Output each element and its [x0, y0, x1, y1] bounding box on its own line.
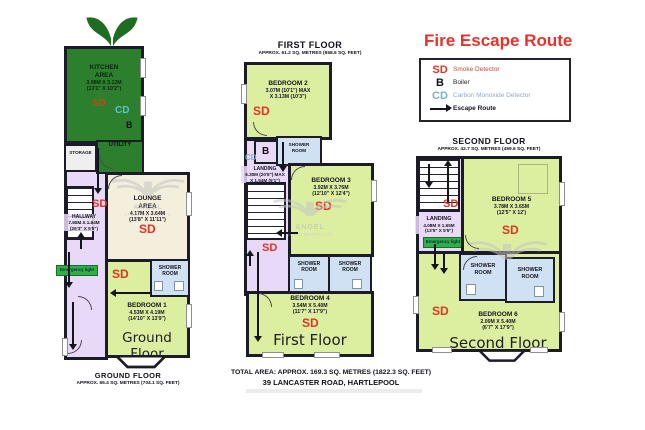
escape-arrow-icon	[278, 232, 298, 234]
front-door-gap	[62, 338, 68, 356]
legend-item-boiler: B Boiler	[427, 76, 563, 89]
room-name: BEDROOM 5	[463, 196, 560, 204]
window	[140, 58, 146, 78]
footer-total-area: TOTAL AREA: APPROX. 169.3 SQ. METRES (18…	[198, 369, 464, 376]
window	[241, 84, 247, 104]
footer-underline	[246, 389, 422, 393]
escape-arrow-icon	[72, 302, 74, 348]
escape-arrow-icon	[112, 292, 150, 294]
window	[186, 304, 192, 328]
window	[559, 312, 565, 332]
shower-fixture	[466, 284, 476, 295]
escape-arrow-icon	[443, 252, 445, 272]
window	[559, 182, 565, 206]
legend-item-label: Carbon Monoxide Detector	[453, 92, 531, 99]
smoke-detector-marker: SD	[443, 199, 458, 210]
room-name: LANDING	[415, 216, 463, 223]
escape-arrow-icon	[447, 162, 449, 202]
floor-heading-title: SECOND FLOOR	[410, 136, 568, 146]
escape-arrow-icon	[97, 148, 99, 192]
boiler-symbol: B	[427, 77, 453, 89]
window	[371, 180, 377, 202]
window	[314, 352, 340, 358]
window	[140, 96, 146, 116]
window	[530, 347, 548, 353]
legend-item-label: Smoke Detector	[453, 66, 500, 73]
cd-symbol: CD	[427, 90, 453, 102]
room-name: BEDROOM 6	[438, 311, 558, 319]
shower-fixture	[534, 286, 544, 297]
floor-heading-area: APPROX. 42.7 SQ. METRES (459.6 SQ. FEET)	[410, 147, 568, 152]
floor-heading: SECOND FLOOR APPROX. 42.7 SQ. METRES (45…	[410, 136, 568, 152]
legend-item-label: Escape Route	[453, 105, 496, 112]
window	[432, 347, 452, 353]
bay-window	[477, 349, 527, 364]
escape-arrow-icon	[434, 244, 436, 268]
room-name: SHOWER ROOM	[505, 267, 555, 280]
legend-box: SD Smoke Detector B Boiler CD Carbon Mon…	[419, 58, 571, 122]
escape-arrow-icon	[282, 142, 284, 170]
footer: TOTAL AREA: APPROX. 169.3 SQ. METRES (18…	[198, 369, 464, 387]
smoke-detector-marker: SD	[502, 224, 519, 236]
legend-title: Fire Escape Route	[424, 31, 572, 51]
legend-item-escape-route: Escape Route	[427, 102, 563, 115]
emergency-light-badge: Emergency light	[423, 237, 463, 248]
legend-item-label: Boiler	[453, 79, 470, 86]
sd-symbol: SD	[427, 64, 453, 76]
window	[186, 192, 192, 216]
legend-item-smoke-detector: SD Smoke Detector	[427, 63, 563, 76]
window	[262, 352, 284, 358]
escape-arrow-icon	[249, 252, 251, 266]
escape-arrow-icon	[68, 252, 70, 286]
footer-address: 39 LANCASTER ROAD, HARTLEPOOL	[198, 378, 464, 387]
window	[413, 296, 419, 314]
escape-arrow-icon	[257, 252, 259, 340]
escape-route-arrow-icon	[430, 108, 450, 110]
room-dims-ft: (13'5" X 5'5")	[415, 228, 463, 234]
closet-outline	[518, 164, 548, 194]
room-dims-ft: (6'7" X 17'9")	[438, 325, 558, 332]
floorplan-page: KITCHEN AREA 3.98M X 3.12M (13'1" X 10'2…	[0, 0, 645, 430]
legend-item-co-detector: CD Carbon Monoxide Detector	[427, 89, 563, 102]
escape-arrow-icon	[80, 234, 82, 249]
escape-arrow-icon	[428, 164, 430, 186]
room-dims-ft: (12'5" X 12')	[463, 210, 560, 217]
